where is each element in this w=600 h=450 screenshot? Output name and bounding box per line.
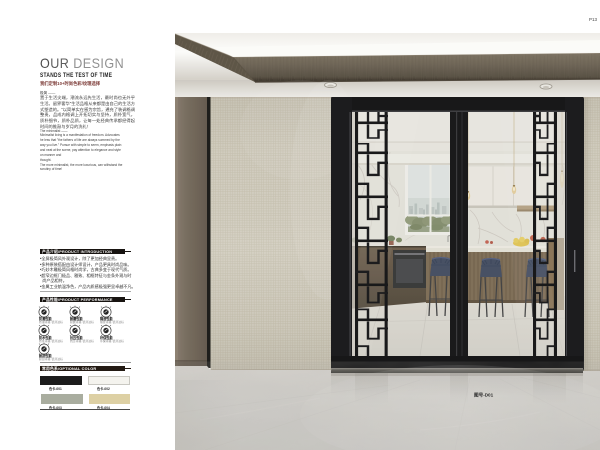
- svg-text:图号-D01: 图号-D01: [474, 392, 494, 399]
